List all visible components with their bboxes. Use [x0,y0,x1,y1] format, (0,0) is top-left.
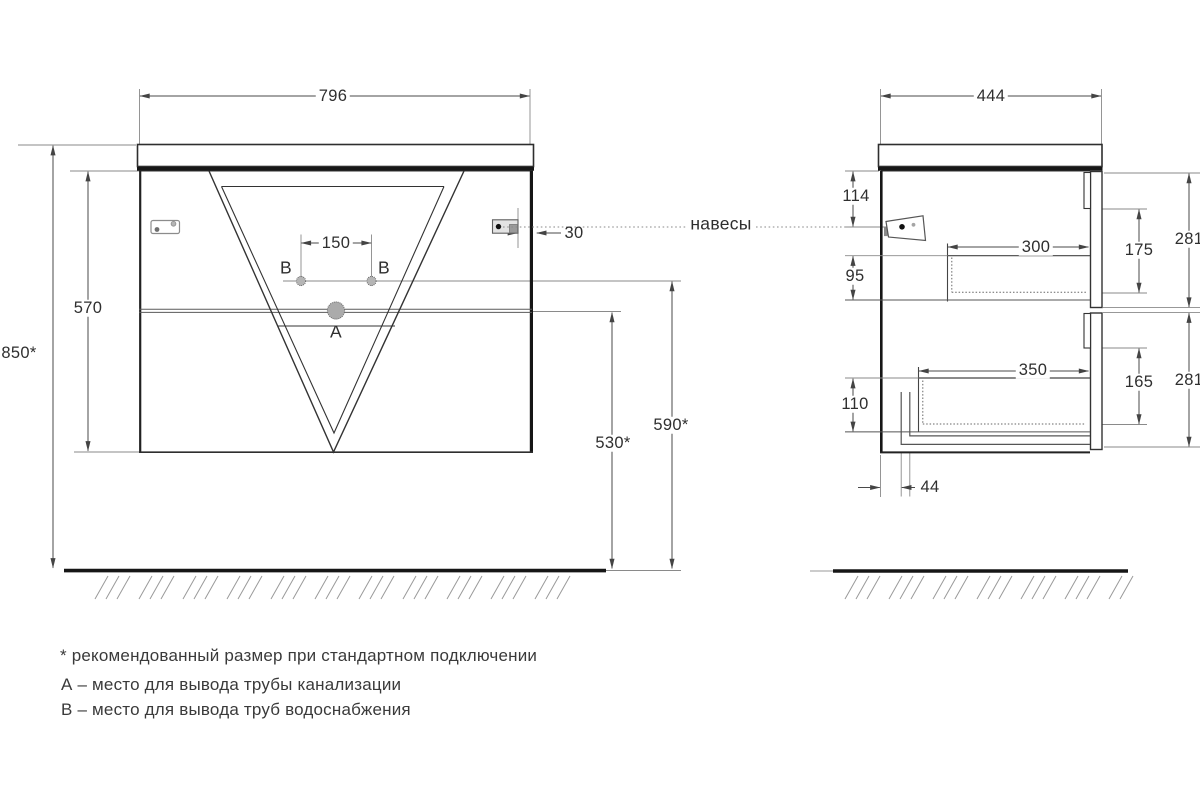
side-view [810,89,1200,599]
footnote-point-b: В – место для вывода труб водоснабжения [61,701,411,718]
drawer-rail-lower [1084,314,1091,349]
front-view [18,89,884,599]
dim-label-supply-590: 590* [650,417,691,434]
dim-label-height-570: 570 [71,300,105,317]
dim-label-175: 175 [1122,242,1156,259]
hangers-callout: навесы [690,215,751,233]
dim-label-drain-530: 530* [592,435,633,452]
drawer-fronts [1084,172,1102,450]
water-supply-point-left [296,276,305,285]
side-countertop [879,145,1103,167]
point-label-b-left: B [280,259,292,277]
footnote-recommended-size: * рекомендованный размер при стандартном… [60,647,537,664]
dim-label-114: 114 [839,188,872,205]
floor-hatch-left [95,576,570,599]
footnote-point-a: А – место для вывода трубы канализации [61,676,401,693]
dim-label-95: 95 [843,268,868,285]
hanger-left [151,221,180,234]
side-cabinet-body [880,171,1090,452]
hanger-side [884,216,926,241]
point-label-a: A [330,323,342,341]
dim-label-width-796: 796 [316,88,350,105]
dim-label-281-lower: 281 [1172,372,1200,389]
dim-label-depth-444: 444 [974,88,1008,105]
pipe-channel [901,392,1090,444]
hanger-right [493,220,519,233]
drain-point [327,302,344,319]
dim-label-281-upper: 281 [1172,231,1200,248]
drawer-rail-upper [1084,173,1091,209]
front-countertop [138,145,534,167]
dim-label-spacing-150: 150 [319,235,353,252]
dim-label-total-850: 850* [1,345,36,362]
dim-label-300: 300 [1019,239,1053,256]
dim-label-165: 165 [1122,374,1156,391]
dim-label-44: 44 [921,479,940,496]
dim-label-350: 350 [1016,362,1050,379]
dim-label-offset-30: 30 [565,225,584,242]
point-label-b-right: B [378,259,390,277]
water-supply-point-right [367,276,376,285]
floor-hatch-right [845,576,1133,599]
vanity-dimension-drawing: 796 850* 570 150 30 530* 590* B B A наве… [0,0,1200,800]
dim-label-110: 110 [838,396,871,413]
